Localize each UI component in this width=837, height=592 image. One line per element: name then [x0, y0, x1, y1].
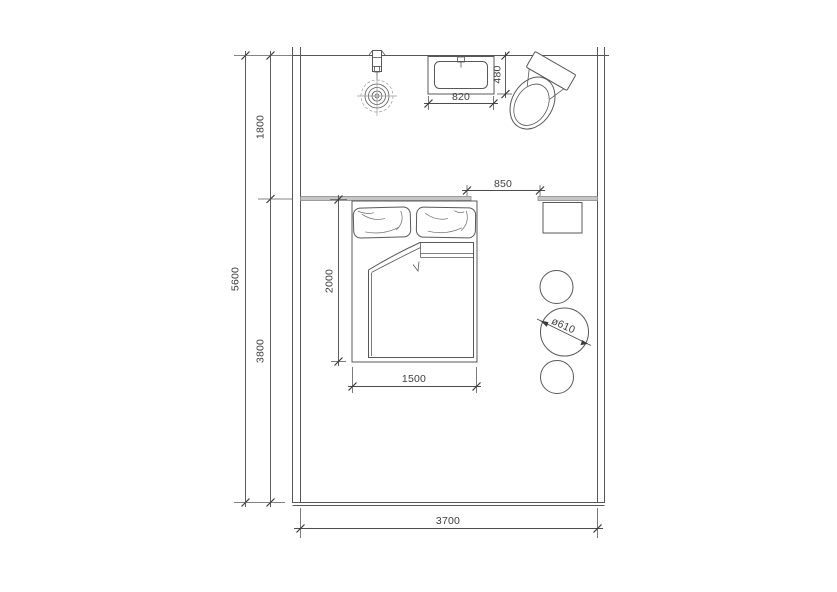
label-zone-top: 1800	[255, 115, 267, 139]
floor-plan-drawing: 5600 1800 3800 3700 850 820 480	[0, 0, 837, 592]
basin	[428, 57, 494, 95]
label-opening-width: 850	[494, 178, 512, 190]
bed	[352, 201, 477, 362]
pillow-right	[416, 207, 476, 238]
dimension-total-height	[242, 51, 250, 507]
toilet	[498, 51, 575, 138]
label-basin-depth: 480	[492, 65, 504, 83]
label-basin-width: 820	[452, 91, 470, 103]
pendant-light-icon	[357, 51, 397, 117]
floor-plan-canvas: 5600 1800 3800 3700 850 820 480	[0, 0, 837, 592]
nightstand	[543, 203, 582, 234]
label-zone-bottom: 3800	[255, 339, 267, 363]
pillow-left	[353, 207, 411, 238]
label-room-width: 3700	[436, 515, 460, 527]
dimension-zones	[267, 51, 275, 507]
label-bed-length: 2000	[324, 269, 336, 293]
label-total-height: 5600	[230, 267, 242, 291]
label-bed-width: 1500	[402, 373, 426, 385]
stool-bottom	[541, 361, 574, 394]
stool-top	[540, 271, 573, 304]
